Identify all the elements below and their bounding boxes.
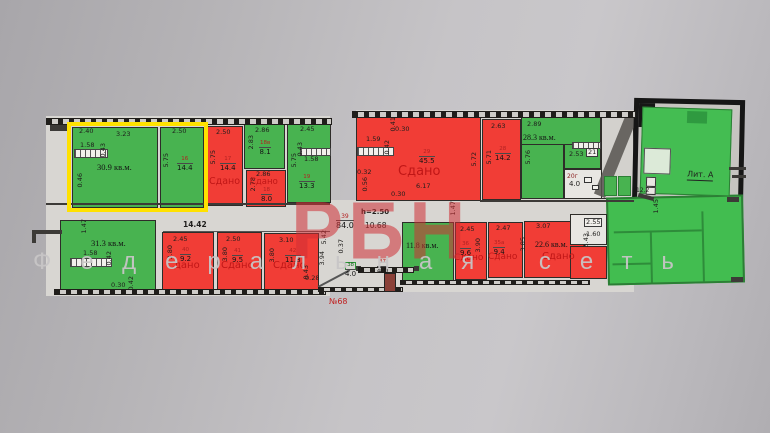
dim-label: 1.58 xyxy=(304,156,318,163)
dim-label: 0.30 xyxy=(111,282,125,289)
dim-label: 3.07 xyxy=(536,223,550,230)
corridor-wall-right xyxy=(480,200,634,202)
dim-label: 1.59 xyxy=(366,136,380,143)
dim-label: 2.86 xyxy=(255,127,269,134)
dim-label: 5.76 xyxy=(525,150,532,164)
dim-label: 14.42 xyxy=(183,221,207,229)
plan-number: №68 xyxy=(329,297,348,306)
dim-label: 0.42 xyxy=(384,140,391,154)
dim-label: 5.71 xyxy=(486,150,493,164)
dim-label: 2.83 xyxy=(248,135,255,149)
wall-step-h xyxy=(32,230,62,234)
room-tag-17: 1714.4 xyxy=(220,157,236,172)
lit-a-tick-1 xyxy=(729,167,746,170)
dim-label: 5.72 xyxy=(471,152,478,166)
area-label: 12.2 xyxy=(636,188,649,194)
dim-label: 0.30 xyxy=(395,126,409,133)
dim-label: 1.45 xyxy=(653,199,660,213)
dim-label: 5.75 xyxy=(210,150,217,164)
br-tick-2 xyxy=(731,277,743,282)
room-area: 14.4 xyxy=(220,164,236,172)
status-label: Сдано xyxy=(398,165,441,178)
area-label: 4.0 xyxy=(569,181,580,188)
lit-a-notch xyxy=(687,111,707,124)
dim-label: 2.50 xyxy=(226,236,240,243)
area-label: 28.3 кв.м. xyxy=(523,134,556,142)
status-label: Сдано xyxy=(209,177,240,187)
dim-label: 2.53 xyxy=(569,151,583,158)
dim-label: 0.32 xyxy=(357,169,371,176)
room-tag-29: 2945.5 xyxy=(419,150,435,165)
dim-label: 2.45 xyxy=(300,126,314,133)
highlight-outline xyxy=(67,122,208,212)
lit-a-green xyxy=(640,107,733,197)
room-number-21: 21 xyxy=(586,148,598,157)
lit-a-label: Лит. А xyxy=(687,171,714,182)
dim-label: 2.45 xyxy=(173,236,187,243)
door-icon-2 xyxy=(592,185,599,190)
wall-hatch-bottom-left xyxy=(54,289,326,295)
room-area: 8.0 xyxy=(261,195,272,203)
dim-label: 2.50 xyxy=(216,129,230,136)
dim-label: 5.75 xyxy=(291,153,298,167)
door-icon-1 xyxy=(584,177,592,183)
dim-label: 2.89 xyxy=(527,121,541,128)
lit-a-tick-2 xyxy=(732,175,746,178)
wall-hatch-bottom-right xyxy=(400,280,590,285)
dim-label: 1.60 xyxy=(586,231,600,238)
dim-label: 1.47 xyxy=(81,219,88,233)
stairs-green-box-1 xyxy=(604,176,617,196)
room-area: 14.2 xyxy=(495,154,511,162)
room-tag-18: 188.0 xyxy=(261,188,272,203)
stairs-green-box-2 xyxy=(618,176,631,196)
status-label: Сдано xyxy=(250,178,278,187)
wall-step-v xyxy=(32,230,36,243)
dim-label: 2.47 xyxy=(496,225,510,232)
dim-label: 0.42 xyxy=(128,276,135,290)
floor-plan-scan: 2.40 3.23 1.58 0.43 0.46 30.9 кв.м. 2.50… xyxy=(0,0,770,433)
dim-label: 2.55 xyxy=(584,218,602,227)
watermark-tagline: Федеральная сеть xyxy=(33,250,703,274)
room-tag-18v: 18в8.1 xyxy=(259,141,271,156)
inner-wall-2 xyxy=(614,229,702,233)
br-tick-1 xyxy=(727,197,739,202)
wall-stub-top-left xyxy=(50,124,68,131)
lit-a-small-box-1 xyxy=(646,177,656,187)
area-label: 31.3 кв.м. xyxy=(91,239,126,248)
lit-a-cutout xyxy=(643,148,671,175)
dim-label: 2.63 xyxy=(491,123,505,130)
room-tag-28: 2814.2 xyxy=(495,147,511,162)
room-area: 8.1 xyxy=(259,148,271,156)
